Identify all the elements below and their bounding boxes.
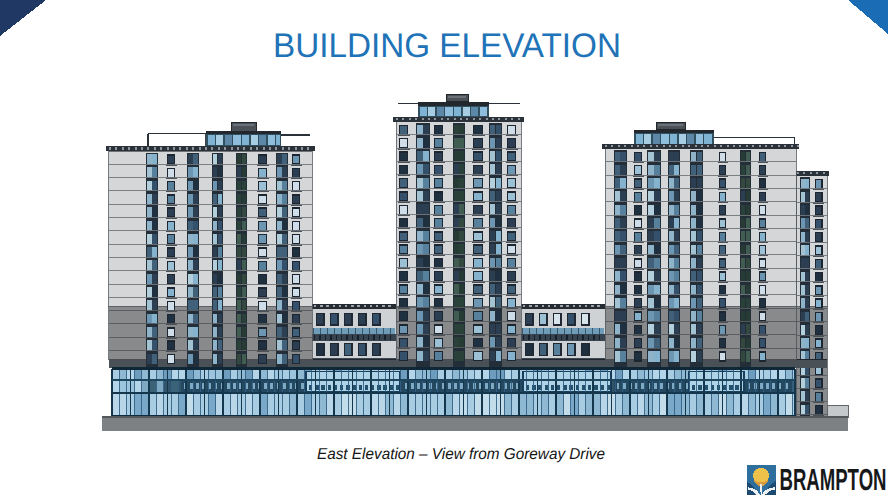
- svg-text:East Elevation – View from Gor: East Elevation – View from Goreway Drive: [317, 446, 605, 463]
- svg-text:BRAMPTON: BRAMPTON: [780, 463, 887, 497]
- svg-text:BUILDING ELEVATION: BUILDING ELEVATION: [273, 27, 621, 65]
